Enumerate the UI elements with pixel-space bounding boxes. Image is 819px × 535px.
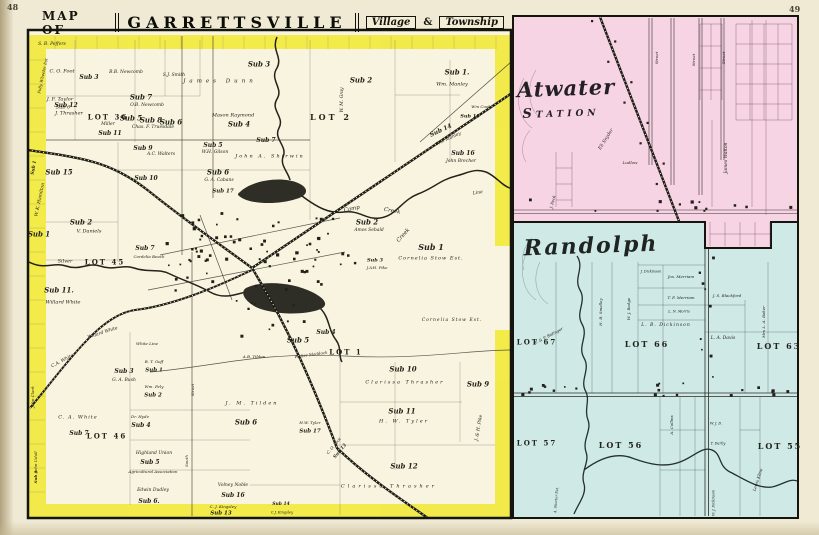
- banner-ampersand: &: [423, 17, 432, 28]
- map-title-banner: MAP OF GARRETTSVILLE Village & Township: [42, 10, 504, 35]
- page-number-right: 49: [789, 4, 800, 14]
- banner-map-of: MAP OF: [42, 9, 108, 37]
- randolph-inset-title: Randolph: [523, 231, 659, 262]
- page-number-left: 48: [7, 2, 18, 12]
- atwater-inset-subtitle: Station: [522, 104, 600, 122]
- atwater-inset-title: Atwater: [516, 74, 615, 102]
- banner-village-tab: Village: [366, 16, 417, 29]
- map-artwork: [0, 0, 819, 535]
- atlas-page: 48 49 MAP OF GARRETTSVILLE Village & Tow…: [0, 0, 819, 535]
- page-title: GARRETTSVILLE: [115, 13, 358, 32]
- banner-township-tab: Township: [439, 16, 504, 29]
